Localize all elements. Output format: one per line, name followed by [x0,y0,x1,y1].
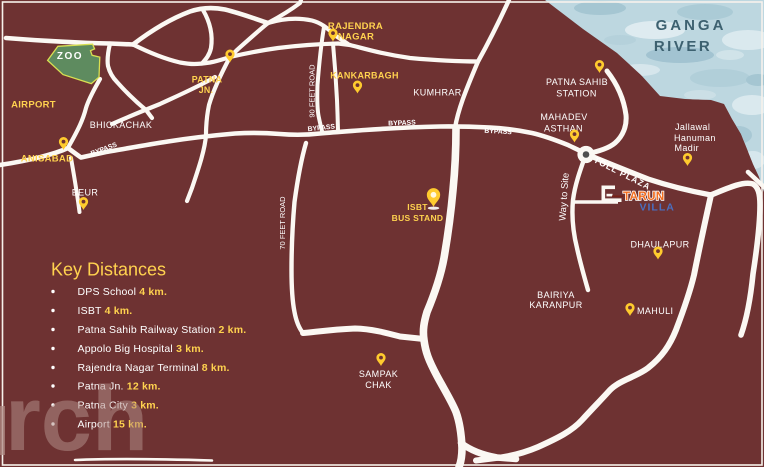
svg-text:BAIRIYA: BAIRIYA [537,290,575,300]
svg-text:NAGAR: NAGAR [338,32,374,43]
svg-text:AIRPORT: AIRPORT [11,100,56,111]
svg-text:ZOO: ZOO [57,51,83,62]
svg-text:KANKARBAGH: KANKARBAGH [330,71,399,81]
svg-text:ISBT 4 km.: ISBT 4 km. [78,305,133,317]
svg-text:BUS STAND: BUS STAND [392,213,444,223]
svg-text:GANGA: GANGA [656,17,727,34]
svg-text:BEUR: BEUR [72,188,99,198]
svg-text:Key Distances: Key Distances [51,260,166,280]
svg-text:SAMPAK: SAMPAK [359,369,398,379]
svg-text:KARANPUR: KARANPUR [529,300,582,310]
svg-text:MAHULI: MAHULI [637,306,673,316]
svg-text:PATNA: PATNA [192,75,223,85]
svg-text:JN.: JN. [199,85,214,95]
svg-text:VILLA: VILLA [640,202,675,214]
svg-text:PATNA SAHIB: PATNA SAHIB [546,77,608,87]
svg-text:MAHADEV: MAHADEV [540,112,587,122]
svg-text:DPS School 4 km.: DPS School 4 km. [78,286,168,298]
svg-text:BYPASS: BYPASS [484,128,512,136]
svg-text:STATION: STATION [556,89,596,99]
svg-text:Appolo Big Hospital 3 km.: Appolo Big Hospital 3 km. [78,343,204,355]
svg-text:CHAK: CHAK [365,380,392,390]
svg-text:Hanuman: Hanuman [674,133,716,143]
svg-text:ISBT: ISBT [407,202,428,212]
svg-text:BHICKACHAK: BHICKACHAK [90,120,153,130]
svg-text:Jallawal: Jallawal [675,122,710,132]
svg-text:Patna Sahib Railway Station 2: Patna Sahib Railway Station 2 km. [78,324,247,336]
svg-text:BYPASS: BYPASS [388,120,416,128]
svg-text:70 FEET ROAD: 70 FEET ROAD [278,196,287,250]
svg-text:rch: rch [5,368,148,467]
svg-text:KUMHRAR: KUMHRAR [413,88,461,98]
svg-text:Madir: Madir [675,143,700,153]
svg-text:90 FEET ROAD: 90 FEET ROAD [308,64,317,118]
svg-text:RIVER: RIVER [654,38,712,55]
svg-text:ANISABAD: ANISABAD [21,154,74,165]
